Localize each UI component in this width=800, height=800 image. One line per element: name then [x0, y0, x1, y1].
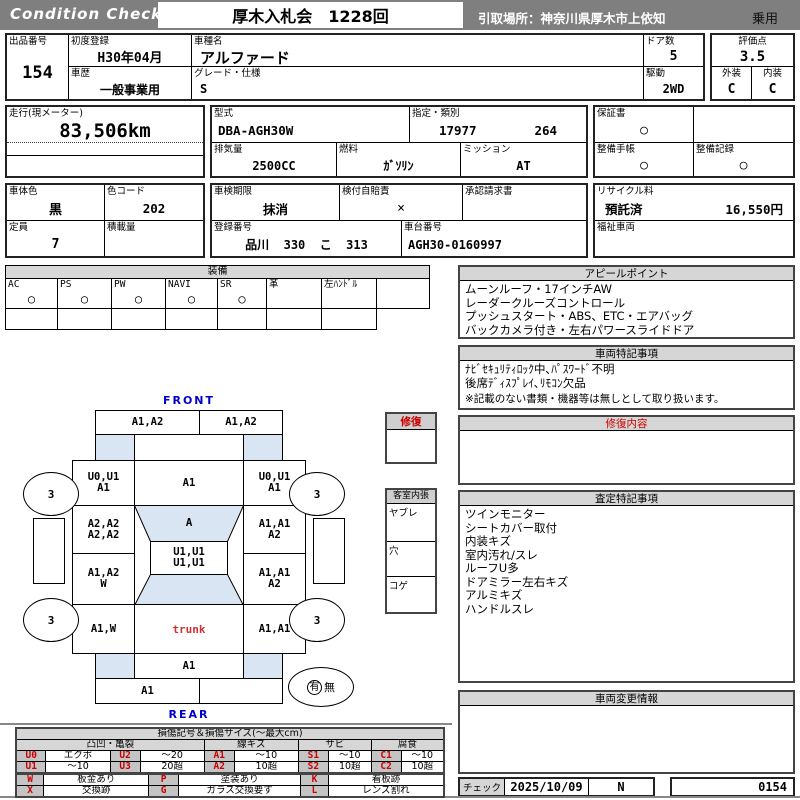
field-welfare-vehicle: 福祉車両 — [595, 221, 793, 256]
approval-request-label: 承認請求書 — [463, 185, 586, 197]
legend-desc: 10超 — [328, 762, 371, 774]
equip-ac: AC○ — [6, 278, 58, 309]
color-box: 車体色 黒 色コード 202 定員 7 積載量 — [5, 183, 205, 258]
separator-line-left — [0, 723, 452, 725]
panel-front-bumper-left: A1,A2 — [95, 410, 200, 435]
panel-text: A1 — [183, 660, 196, 672]
equipment-title: 装備 — [5, 265, 430, 279]
legend-code: U3 — [110, 762, 140, 774]
damage-legend-title: 損傷記号＆損傷サイズ(～最大cm) — [16, 728, 444, 740]
appeal-line: ムーンルーフ・17インチAW — [465, 283, 788, 297]
field-load-capacity: 積載量 — [105, 221, 203, 256]
drive-label: 駆動 — [644, 67, 703, 79]
equip-label: AC — [6, 278, 57, 290]
model-label: 車種名 — [192, 35, 643, 47]
panel-door-rear-left: A1,A2W — [72, 553, 135, 605]
equip-mark — [267, 290, 321, 308]
equip-lhd: 左ﾊﾝﾄﾞﾙ — [322, 278, 377, 309]
auction-title-strip: 厚木入札会 1228回 — [158, 2, 463, 28]
class-number: 264 — [534, 123, 557, 138]
equip-empty-cell — [112, 309, 166, 330]
field-fuel: 燃料 ｶﾞｿﾘﾝ — [337, 143, 461, 176]
panel-text: A2 — [268, 530, 281, 541]
field-chassis-number: 車台番号 AGH30-0160997 — [402, 221, 586, 256]
headlight-right — [243, 434, 283, 461]
legend-code: C2 — [371, 762, 401, 774]
panel-text: A1,A2 — [132, 417, 164, 428]
model-value: アルファード — [192, 47, 643, 68]
welfare-vehicle-value — [595, 233, 793, 256]
field-color-code: 色コード 202 — [105, 185, 203, 221]
damage-legend-table: 損傷記号＆損傷サイズ(～最大cm) 凸凹・亀裂 線キズ サビ 腐食 U0エクボ … — [15, 727, 445, 774]
equipment-table: 装備 AC○ PS○ PW○ NAVI○ SR○ 革 左ﾊﾝﾄﾞﾙ — [5, 265, 430, 330]
model-code-label: 型式 — [212, 107, 409, 119]
panel-text: A2,A2 — [88, 530, 120, 541]
tire-grade: 3 — [48, 614, 55, 627]
legend-desc: 交換跡 — [44, 786, 149, 798]
equipment-row-2 — [5, 309, 377, 330]
equip-label: NAVI — [166, 278, 217, 290]
panel-text: A1,W — [91, 624, 116, 635]
maintenance-record-mark: ○ — [694, 155, 793, 176]
field-model-name: 車種名 アルファード — [192, 35, 644, 67]
displacement-value: 2500CC — [212, 155, 336, 176]
doors-label: ドア数 — [644, 35, 703, 47]
assessment-line: ドアミラー左右キズ — [465, 576, 788, 590]
registration-number-value: 品川 330 こ 313 — [212, 233, 401, 256]
fuel-value: ｶﾞｿﾘﾝ — [337, 155, 460, 176]
appeal-points-section: アピールポイント ムーンルーフ・17インチAW レーダークルーズコントロール プ… — [458, 265, 795, 339]
grade-value: S — [192, 79, 643, 99]
insurance-mark: × — [340, 197, 462, 220]
legend-desc: ガラス交換要す — [179, 786, 301, 798]
front-label: FRONT — [95, 394, 283, 407]
legend-code: L — [301, 786, 329, 798]
drive-value: 2WD — [644, 79, 703, 99]
panel-text: U1,U1 — [173, 558, 205, 569]
field-model-code: 型式 DBA-AGH30W — [212, 107, 410, 143]
field-exterior-grade: 外装 C — [712, 67, 752, 99]
chassis-number-label: 車台番号 — [402, 221, 586, 233]
chassis-number-value: AGH30-0160997 — [402, 233, 586, 256]
field-score: 評価点 3.5 — [712, 35, 793, 67]
inspection-box: 車検期限 抹消 検付自賠責 × 承認請求書 登録番号 品川 330 こ 313 … — [210, 183, 588, 258]
legend-desc: レンズ割れ — [328, 786, 444, 798]
spare-tire-indicator: 有 無 — [288, 667, 354, 707]
repair-legend-title: 修復 — [387, 414, 435, 430]
lot-value: 154 — [7, 47, 68, 99]
maintenance-book-label: 整備手帳 — [595, 143, 693, 155]
score-label: 評価点 — [712, 35, 793, 47]
tire-front-left: 3 — [23, 472, 79, 516]
panel-text: A1,A1 — [259, 624, 291, 635]
insurance-label: 検付自賠責 — [340, 185, 462, 197]
legend-desc: ～10 — [401, 751, 444, 762]
vehicle-class: 乗用 — [752, 8, 778, 27]
field-displacement: 排気量 2500CC — [212, 143, 337, 176]
check-date: 2025/10/09 — [505, 779, 589, 795]
exterior-value: C — [712, 79, 751, 99]
interior-legend-title: 客室内張 — [387, 490, 435, 504]
panel-rear-bumper-left: A1 — [95, 678, 200, 704]
equip-empty-cell — [322, 309, 377, 330]
equip-sr: SR○ — [218, 278, 267, 309]
legend-code: W — [16, 774, 44, 786]
load-capacity-value — [105, 233, 203, 256]
field-doors: ドア数 5 — [644, 35, 703, 67]
taillight-right — [243, 653, 283, 679]
legend-desc: 看板跡 — [328, 774, 444, 786]
recycle-status: 預託済 — [605, 199, 643, 218]
equip-mark — [377, 279, 429, 308]
documents-box: 保証書 ○ 整備手帳 ○ 整備記録 ○ — [593, 105, 795, 178]
lot-label: 出品番号 — [7, 35, 68, 47]
color-code-label: 色コード — [105, 185, 203, 197]
panel-text: A1 — [183, 478, 196, 489]
tire-rear-right: 3 — [289, 598, 345, 642]
legend-code: U1 — [16, 762, 46, 774]
assessment-line: ハンドルスレ — [465, 603, 788, 617]
panel-fender-front-left: U0,U1A1 — [72, 460, 135, 506]
repair-content-title: 修復内容 — [460, 417, 793, 431]
field-interior-grade: 内装 C — [752, 67, 793, 99]
rear-window-glass — [134, 574, 244, 606]
fuel-label: 燃料 — [337, 143, 460, 155]
mileage-label: 走行(現メーター) — [7, 107, 203, 119]
history-label: 車歴 — [69, 67, 191, 79]
field-drive: 駆動 2WD — [644, 67, 703, 99]
first-reg-label: 初度登録 — [69, 35, 191, 47]
model-code-value: DBA-AGH30W — [212, 119, 409, 142]
equip-navi: NAVI○ — [166, 278, 218, 309]
side-step-right — [313, 518, 345, 584]
change-info-body — [460, 706, 793, 710]
panel-front-bumper-right: A1,A2 — [199, 410, 283, 435]
assessment-line: 室内汚れ/スレ — [465, 549, 788, 563]
equip-label: 革 — [267, 278, 321, 290]
equip-mark: ○ — [112, 290, 165, 308]
legend-code: S2 — [298, 762, 328, 774]
panel-text: W — [100, 579, 106, 590]
equip-extra — [377, 278, 430, 309]
warranty-mark: ○ — [595, 119, 693, 142]
legend-desc: 塗装あり — [179, 774, 301, 786]
headlight-left — [95, 434, 135, 461]
field-transmission: ミッション AT — [461, 143, 586, 176]
repair-content-section: 修復内容 — [458, 415, 795, 485]
auction-condition-sheet: { "header": { "logo": "Condition Check",… — [0, 0, 800, 800]
transmission-value: AT — [461, 155, 586, 176]
legend-group-rust: サビ — [298, 740, 371, 751]
assessment-line: ルーフU多 — [465, 562, 788, 576]
registration-number-label: 登録番号 — [212, 221, 401, 233]
legend-group-corrosion: 腐食 — [371, 740, 444, 751]
top-bar: Condition Check 厚木入札会 1228回 引取場所：神奈川県厚木市… — [0, 0, 800, 30]
damage-legend-table-2: W板金あり P塗装あり K看板跡 X交換跡 Gガラス交換要す Lレンズ割れ — [15, 773, 445, 798]
transmission-label: ミッション — [461, 143, 586, 155]
panel-text: A2,A2 — [88, 519, 120, 530]
legend-code: S1 — [298, 751, 328, 762]
legend-code: A2 — [204, 762, 234, 774]
interior-label: 内装 — [752, 67, 793, 79]
color-code-value: 202 — [105, 197, 203, 220]
panel-text: A1,A2 — [225, 417, 257, 428]
repair-legend-box: 修復 — [385, 412, 437, 464]
legend-code: G — [149, 786, 179, 798]
legend-desc: ～20 — [140, 751, 204, 762]
logo-text: Condition Check — [10, 5, 162, 23]
check-inspector: N — [589, 779, 653, 795]
panel-text: A1 — [268, 483, 281, 494]
capacity-label: 定員 — [7, 221, 104, 233]
vehicle-notes-section: 車両特記事項 ﾅﾋﾞｾｷｭﾘﾃｨﾛｯｸ中､ﾊﾟｽﾜｰﾄﾞ不明 後席ﾃﾞｨｽﾌﾟﾚ… — [458, 345, 795, 410]
vehicle-id-box: 出品番号 154 初度登録 H30年04月 車歴 一般事業用 車種名 アルファー… — [5, 33, 705, 101]
vehicle-notes-title: 車両特記事項 — [460, 347, 793, 361]
panel-door-rear-right: A1,A1A2 — [243, 553, 306, 605]
equip-empty-cell — [58, 309, 112, 330]
panel-text: A2 — [268, 579, 281, 590]
equip-pw: PW○ — [112, 278, 166, 309]
repair-content-body — [460, 431, 793, 435]
vehicle-note-line: ﾅﾋﾞｾｷｭﾘﾃｨﾛｯｸ中､ﾊﾟｽﾜｰﾄﾞ不明 — [465, 363, 788, 377]
interior-legend-row-hole: 穴 — [387, 542, 435, 577]
panel-rear-bumper-right — [199, 678, 283, 704]
doors-value: 5 — [644, 47, 703, 66]
inspection-label: 車検期限 — [212, 185, 339, 197]
equip-mark — [322, 290, 376, 308]
field-maintenance-book: 整備手帳 ○ — [595, 143, 694, 176]
equip-mark: ○ — [6, 290, 57, 308]
auction-title: 厚木入札会 1228回 — [232, 3, 389, 27]
recycle-fee-value: 16,550円 — [725, 199, 783, 218]
panel-windshield-text: A — [134, 505, 244, 539]
equip-label: SR — [218, 278, 266, 290]
spare-absent-mark: 無 — [324, 679, 335, 695]
body-color-value: 黒 — [7, 197, 104, 220]
legend-group-dent: 凸凹・亀裂 — [16, 740, 204, 751]
panel-text: A1,A1 — [259, 519, 291, 530]
history-value: 一般事業用 — [69, 79, 191, 99]
equip-empty-cell — [166, 309, 218, 330]
field-capacity: 定員 7 — [7, 221, 105, 256]
panel-text: trunk — [172, 624, 205, 635]
field-inspection-expiry: 車検期限 抹消 — [212, 185, 340, 221]
tire-grade: 3 — [48, 488, 55, 501]
panel-rear-gate: A1 — [134, 653, 244, 679]
legend-desc: 10超 — [234, 762, 298, 774]
appeal-line: レーダークルーズコントロール — [465, 297, 788, 311]
field-approval-request: 承認請求書 — [463, 185, 586, 221]
field-lot-number: 出品番号 154 — [7, 35, 69, 99]
spare-present-mark: 有 — [307, 680, 322, 695]
legend-desc: ～10 — [46, 762, 110, 774]
tire-front-right: 3 — [289, 472, 345, 516]
mileage-box: 走行(現メーター) 83,506km — [5, 105, 205, 178]
capacity-value: 7 — [7, 233, 104, 256]
field-body-color: 車体色 黒 — [7, 185, 105, 221]
legend-desc: 板金あり — [44, 774, 149, 786]
inspection-value: 抹消 — [212, 197, 339, 220]
warranty-label: 保証書 — [595, 107, 693, 119]
field-maintenance-record: 整備記録 ○ — [694, 143, 793, 176]
equipment-row-1: AC○ PS○ PW○ NAVI○ SR○ 革 左ﾊﾝﾄﾞﾙ — [5, 278, 430, 309]
recycle-box: リサイクル料 預託済 16,550円 福祉車両 — [593, 183, 795, 258]
assessment-line: シートカバー取付 — [465, 522, 788, 536]
vehicle-note-line: 後席ﾃﾞｨｽﾌﾟﾚｲ､ﾘﾓｺﾝ欠品 — [465, 377, 788, 391]
maintenance-book-mark: ○ — [595, 155, 693, 176]
recycle-label: リサイクル料 — [595, 185, 793, 197]
designation-class-label: 指定・類別 — [410, 107, 586, 119]
panel-text: A1 — [97, 483, 110, 494]
approval-request-value — [463, 197, 586, 220]
panel-door-front-left: A2,A2A2,A2 — [72, 505, 135, 554]
taillight-left — [95, 653, 135, 679]
assessment-line: 内装キズ — [465, 535, 788, 549]
field-registration-number: 登録番号 品川 330 こ 313 — [212, 221, 402, 256]
appeal-line: プッシュスタート・ABS、ETC・エアバッグ — [465, 310, 788, 324]
mileage-spacer-2 — [7, 156, 203, 176]
mileage-spacer-1 — [7, 143, 203, 156]
panel-trunk: trunk — [134, 604, 244, 654]
equip-mark: ○ — [218, 290, 266, 308]
field-first-registration: 初度登録 H30年04月 — [69, 35, 192, 67]
field-grade: グレード・仕様 S — [192, 67, 644, 99]
equip-empty-cell — [6, 309, 58, 330]
interior-value: C — [752, 79, 793, 99]
grade-label: グレード・仕様 — [192, 67, 643, 79]
assessment-line: ツインモニター — [465, 508, 788, 522]
field-insurance: 検付自賠責 × — [340, 185, 463, 221]
appeal-line: バックカメラ付き・左右パワースライドドア — [465, 324, 788, 338]
vehicle-notes-disclaimer: ※記載のない書類・機器等は無しとして取り扱います。 — [465, 393, 788, 407]
panel-door-front-right: A1,A1A2 — [243, 505, 306, 554]
score-box: 評価点 3.5 外装 C 内装 C — [710, 33, 795, 101]
assessment-notes-title: 査定特記事項 — [460, 492, 793, 506]
hood-top-area — [134, 434, 244, 461]
body-color-label: 車体色 — [7, 185, 104, 197]
exterior-label: 外装 — [712, 67, 751, 79]
field-designation-class: 指定・類別 17977 264 — [410, 107, 586, 143]
car-damage-diagram: FRONT A1,A2 A1,A2 U0,U1A1 A1 U0,U1A1 3 3… — [5, 388, 455, 725]
designation-number: 17977 — [439, 123, 477, 138]
legend-code: C1 — [371, 751, 401, 762]
legend-desc: エクボ — [46, 751, 110, 762]
legend-code: U2 — [110, 751, 140, 762]
pickup-location: 引取場所：神奈川県厚木市上依知 — [478, 8, 666, 27]
legend-group-scratch: 線キズ — [204, 740, 298, 751]
legend-code: X — [16, 786, 44, 798]
equip-empty-cell — [218, 309, 267, 330]
legend-desc: 20超 — [140, 762, 204, 774]
side-step-left — [33, 518, 65, 584]
equip-label: 左ﾊﾝﾄﾞﾙ — [322, 278, 376, 290]
appeal-points-title: アピールポイント — [460, 267, 793, 281]
equip-mark: ○ — [166, 290, 217, 308]
interior-legend-row-burn: コゲ — [387, 577, 435, 612]
equip-ps: PS○ — [58, 278, 112, 309]
equip-mark: ○ — [58, 290, 111, 308]
interior-legend-box: 客室内張 ヤブレ 穴 コゲ — [385, 488, 437, 614]
field-warranty: 保証書 ○ — [595, 107, 694, 143]
sheet-number-box: 0154 — [670, 777, 795, 797]
welfare-vehicle-label: 福祉車両 — [595, 221, 793, 233]
tire-rear-left: 3 — [23, 598, 79, 642]
assessment-notes-section: 査定特記事項 ツインモニター シートカバー取付 内装キズ 室内汚れ/スレ ルーフ… — [458, 490, 795, 683]
panel-text: A1 — [141, 686, 154, 697]
change-info-section: 車両変更情報 — [458, 690, 795, 774]
panel-hood: A1 — [134, 460, 244, 506]
panel-roof: U1,U1U1,U1 — [150, 541, 228, 575]
equip-label: PW — [112, 278, 165, 290]
equip-leather: 革 — [267, 278, 322, 309]
mileage-value: 83,506km — [7, 119, 203, 143]
load-capacity-label: 積載量 — [105, 221, 203, 233]
first-reg-value: H30年04月 — [69, 47, 191, 66]
tire-grade: 3 — [314, 488, 321, 501]
check-row-box: チェック 2025/10/09 N — [458, 777, 655, 797]
legend-code: U0 — [16, 751, 46, 762]
maintenance-record-label: 整備記録 — [694, 143, 793, 155]
legend-desc: 10超 — [401, 762, 444, 774]
score-value: 3.5 — [712, 47, 793, 66]
change-info-title: 車両変更情報 — [460, 692, 793, 706]
field-warranty-blank — [694, 107, 793, 143]
displacement-label: 排気量 — [212, 143, 336, 155]
rear-label: REAR — [95, 708, 283, 721]
legend-desc: ～10 — [234, 751, 298, 762]
equip-empty-cell — [267, 309, 322, 330]
assessment-line: アルミキズ — [465, 589, 788, 603]
panel-quarter-left: A1,W — [72, 604, 135, 654]
model-code-box: 型式 DBA-AGH30W 指定・類別 17977 264 排気量 2500CC… — [210, 105, 588, 178]
legend-desc: ～10 — [328, 751, 371, 762]
legend-code: A1 — [204, 751, 234, 762]
legend-code: P — [149, 774, 179, 786]
field-history: 車歴 一般事業用 — [69, 67, 192, 99]
legend-code: K — [301, 774, 329, 786]
field-recycle-fee: リサイクル料 預託済 16,550円 — [595, 185, 793, 221]
tire-grade: 3 — [314, 614, 321, 627]
check-label: チェック — [460, 779, 505, 795]
interior-legend-row-tear: ヤブレ — [387, 504, 435, 542]
equip-label: PS — [58, 278, 111, 290]
